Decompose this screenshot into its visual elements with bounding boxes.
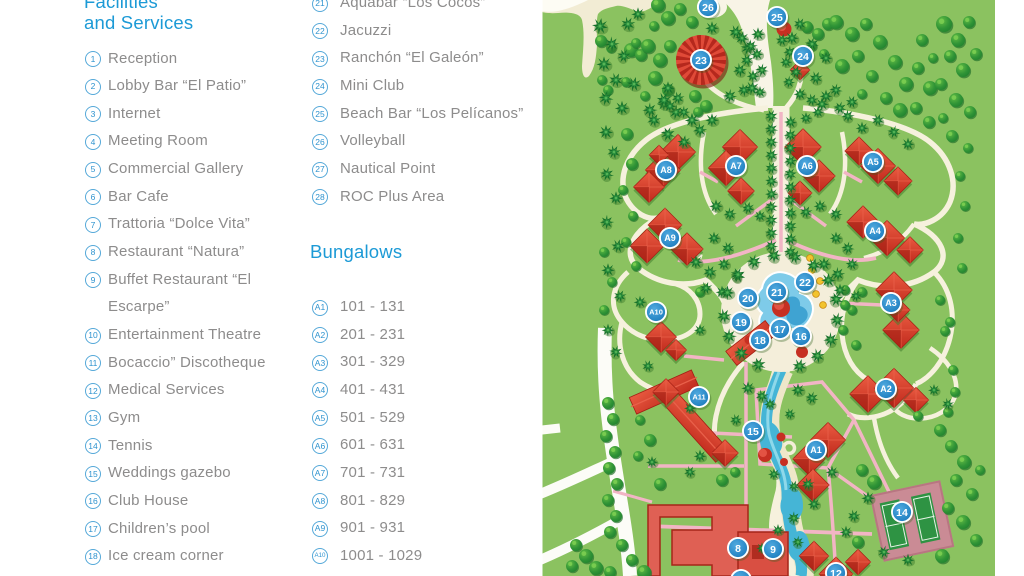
- svg-text:A3: A3: [885, 298, 897, 308]
- svg-text:A5: A5: [867, 157, 879, 167]
- svg-text:25: 25: [771, 12, 783, 24]
- svg-text:20: 20: [742, 293, 754, 305]
- svg-text:A11: A11: [692, 393, 705, 402]
- svg-text:26: 26: [702, 2, 714, 14]
- svg-text:19: 19: [735, 317, 747, 329]
- svg-text:22: 22: [799, 277, 811, 289]
- svg-text:A10: A10: [649, 308, 663, 317]
- svg-text:15: 15: [747, 426, 759, 438]
- svg-text:14: 14: [896, 507, 908, 519]
- svg-text:23: 23: [695, 55, 707, 67]
- svg-text:18: 18: [754, 335, 766, 347]
- svg-text:A4: A4: [869, 226, 881, 236]
- svg-text:9: 9: [770, 544, 776, 556]
- svg-text:8: 8: [735, 543, 741, 555]
- svg-text:A6: A6: [801, 161, 813, 171]
- svg-text:17: 17: [774, 324, 786, 336]
- svg-text:A8: A8: [660, 165, 672, 175]
- svg-text:16: 16: [795, 331, 807, 343]
- svg-text:21: 21: [771, 287, 783, 299]
- svg-text:A1: A1: [810, 445, 822, 455]
- svg-text:A9: A9: [664, 233, 676, 243]
- svg-text:12: 12: [830, 568, 842, 576]
- svg-text:A7: A7: [730, 161, 742, 171]
- svg-text:A2: A2: [880, 384, 892, 394]
- svg-text:24: 24: [797, 51, 809, 63]
